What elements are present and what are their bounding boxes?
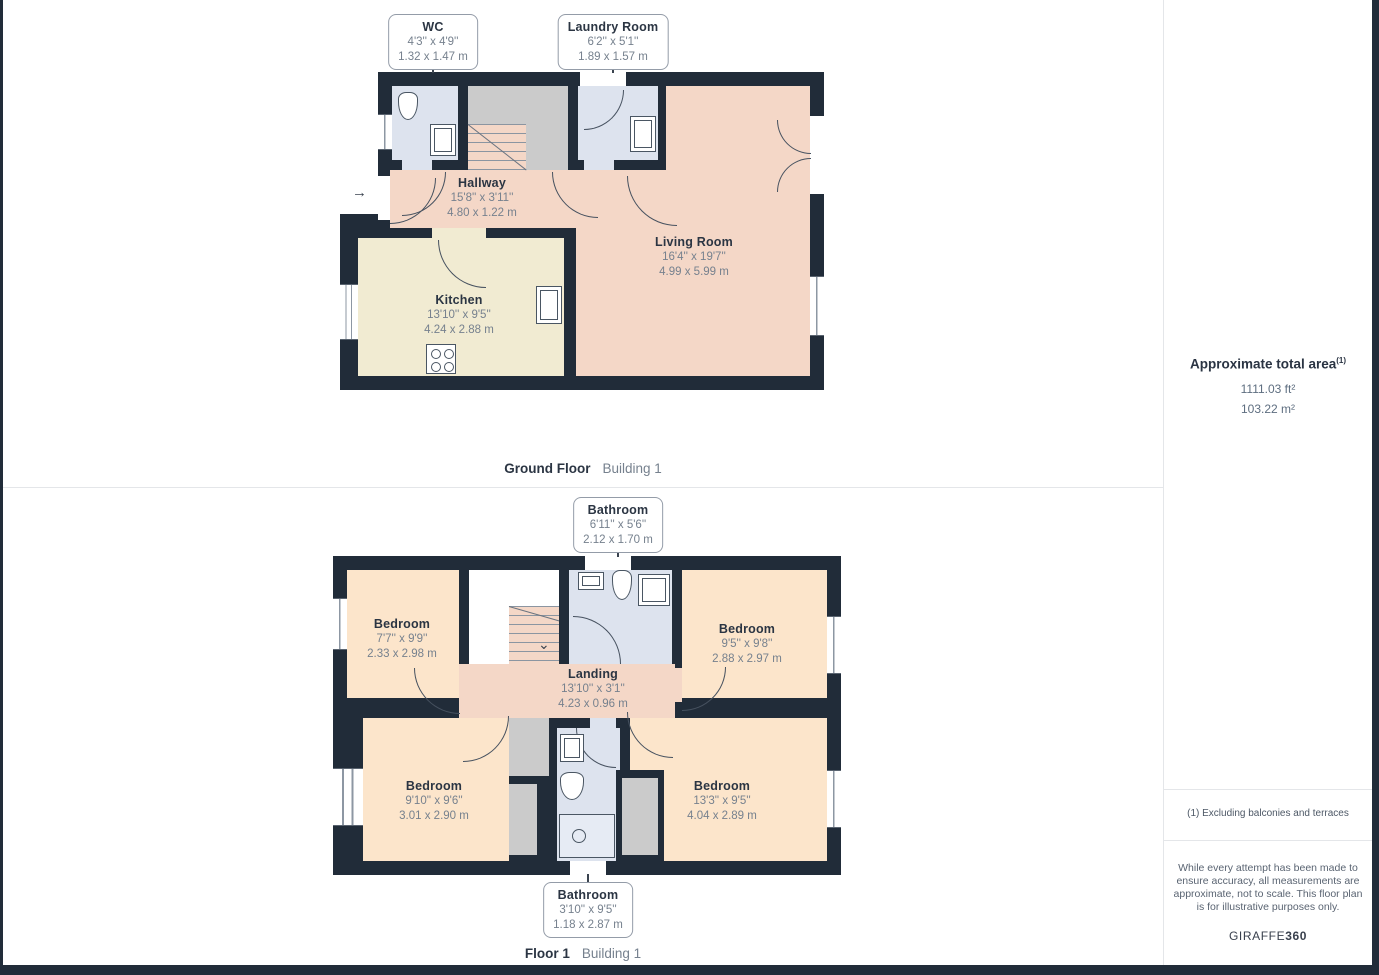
entry-arrow-icon: →	[352, 184, 367, 201]
laundry-exterior-door-opening	[580, 72, 626, 86]
f1-closet-left-lower	[509, 784, 537, 855]
landing-tr-door-gap	[672, 668, 682, 702]
kitchen-door-gap	[432, 228, 486, 238]
room-living-lower	[576, 170, 810, 376]
wc-door-gap	[402, 160, 432, 170]
ground-floor-caption: Ground FloorBuilding 1	[504, 461, 662, 476]
bathroom-top-sink	[578, 572, 604, 590]
bedroom-bl-window	[333, 768, 363, 826]
total-area-m: 103.22 m²	[1163, 402, 1373, 416]
room-landing	[459, 664, 675, 718]
footnote-marker: (1)	[1336, 356, 1346, 365]
bathroom-bottom-shower	[559, 814, 615, 858]
bathroom-bottom-sink	[560, 734, 584, 762]
sidebar-footnote-divider-top	[1163, 789, 1373, 790]
bathroom-top-door-opening	[585, 556, 631, 570]
giraffe360-logo: GIRAFFE360	[1163, 929, 1373, 943]
frame-bottom	[0, 965, 1379, 975]
sidebar-divider	[1163, 0, 1164, 965]
entry-door-opening	[378, 176, 390, 220]
bathroom-top-callout: Bathroom 6'11'' x 5'6'' 2.12 x 1.70 m	[573, 497, 663, 553]
kitchen-window	[340, 284, 358, 340]
sidebar-footnote-divider-bottom	[1163, 840, 1373, 841]
laundry-door-gap	[584, 160, 614, 170]
kitchen-stove	[426, 344, 456, 374]
laundry-callout: Laundry Room 6'2'' x 5'1'' 1.89 x 1.57 m	[558, 14, 669, 70]
total-area-ft: 1111.03 ft²	[1163, 382, 1373, 396]
bathroom-bottom-door-gap	[590, 718, 616, 728]
living-french-door-opening	[810, 116, 824, 194]
floor1-caption: Floor 1Building 1	[525, 946, 641, 961]
bedroom-tr-window	[827, 616, 841, 674]
wc-callout: WC 4'3'' x 4'9'' 1.32 x 1.47 m	[388, 14, 478, 70]
bedroom-br-window	[827, 770, 841, 828]
floor-divider	[3, 487, 1163, 488]
laundry-sink	[630, 116, 656, 152]
living-window	[810, 276, 824, 336]
stair-down-arrow-icon: ⌄	[538, 636, 550, 653]
total-area-title: Approximate total area(1)	[1163, 356, 1373, 372]
bedroom-tl-window	[333, 598, 347, 650]
frame-left	[0, 0, 3, 975]
f1-closet-left-upper	[509, 718, 549, 776]
disclaimer-text: While every attempt has been made to ens…	[1172, 862, 1364, 914]
f1-closet-right	[622, 778, 658, 855]
footnote-text: (1) Excluding balconies and terraces	[1163, 808, 1373, 819]
bathroom-bottom-callout: Bathroom 3'10'' x 9'5'' 1.18 x 2.87 m	[543, 882, 633, 938]
wc-window	[378, 114, 392, 150]
f1-stairs	[509, 606, 559, 664]
bathroom-bottom-wall-opening	[570, 861, 606, 875]
wc-sink	[430, 124, 456, 156]
kitchen-counter-appliance	[536, 286, 562, 324]
bathroom-bottom-callout-connector	[587, 874, 589, 882]
bathroom-top-shower	[638, 574, 670, 606]
frame-right	[1372, 0, 1379, 975]
